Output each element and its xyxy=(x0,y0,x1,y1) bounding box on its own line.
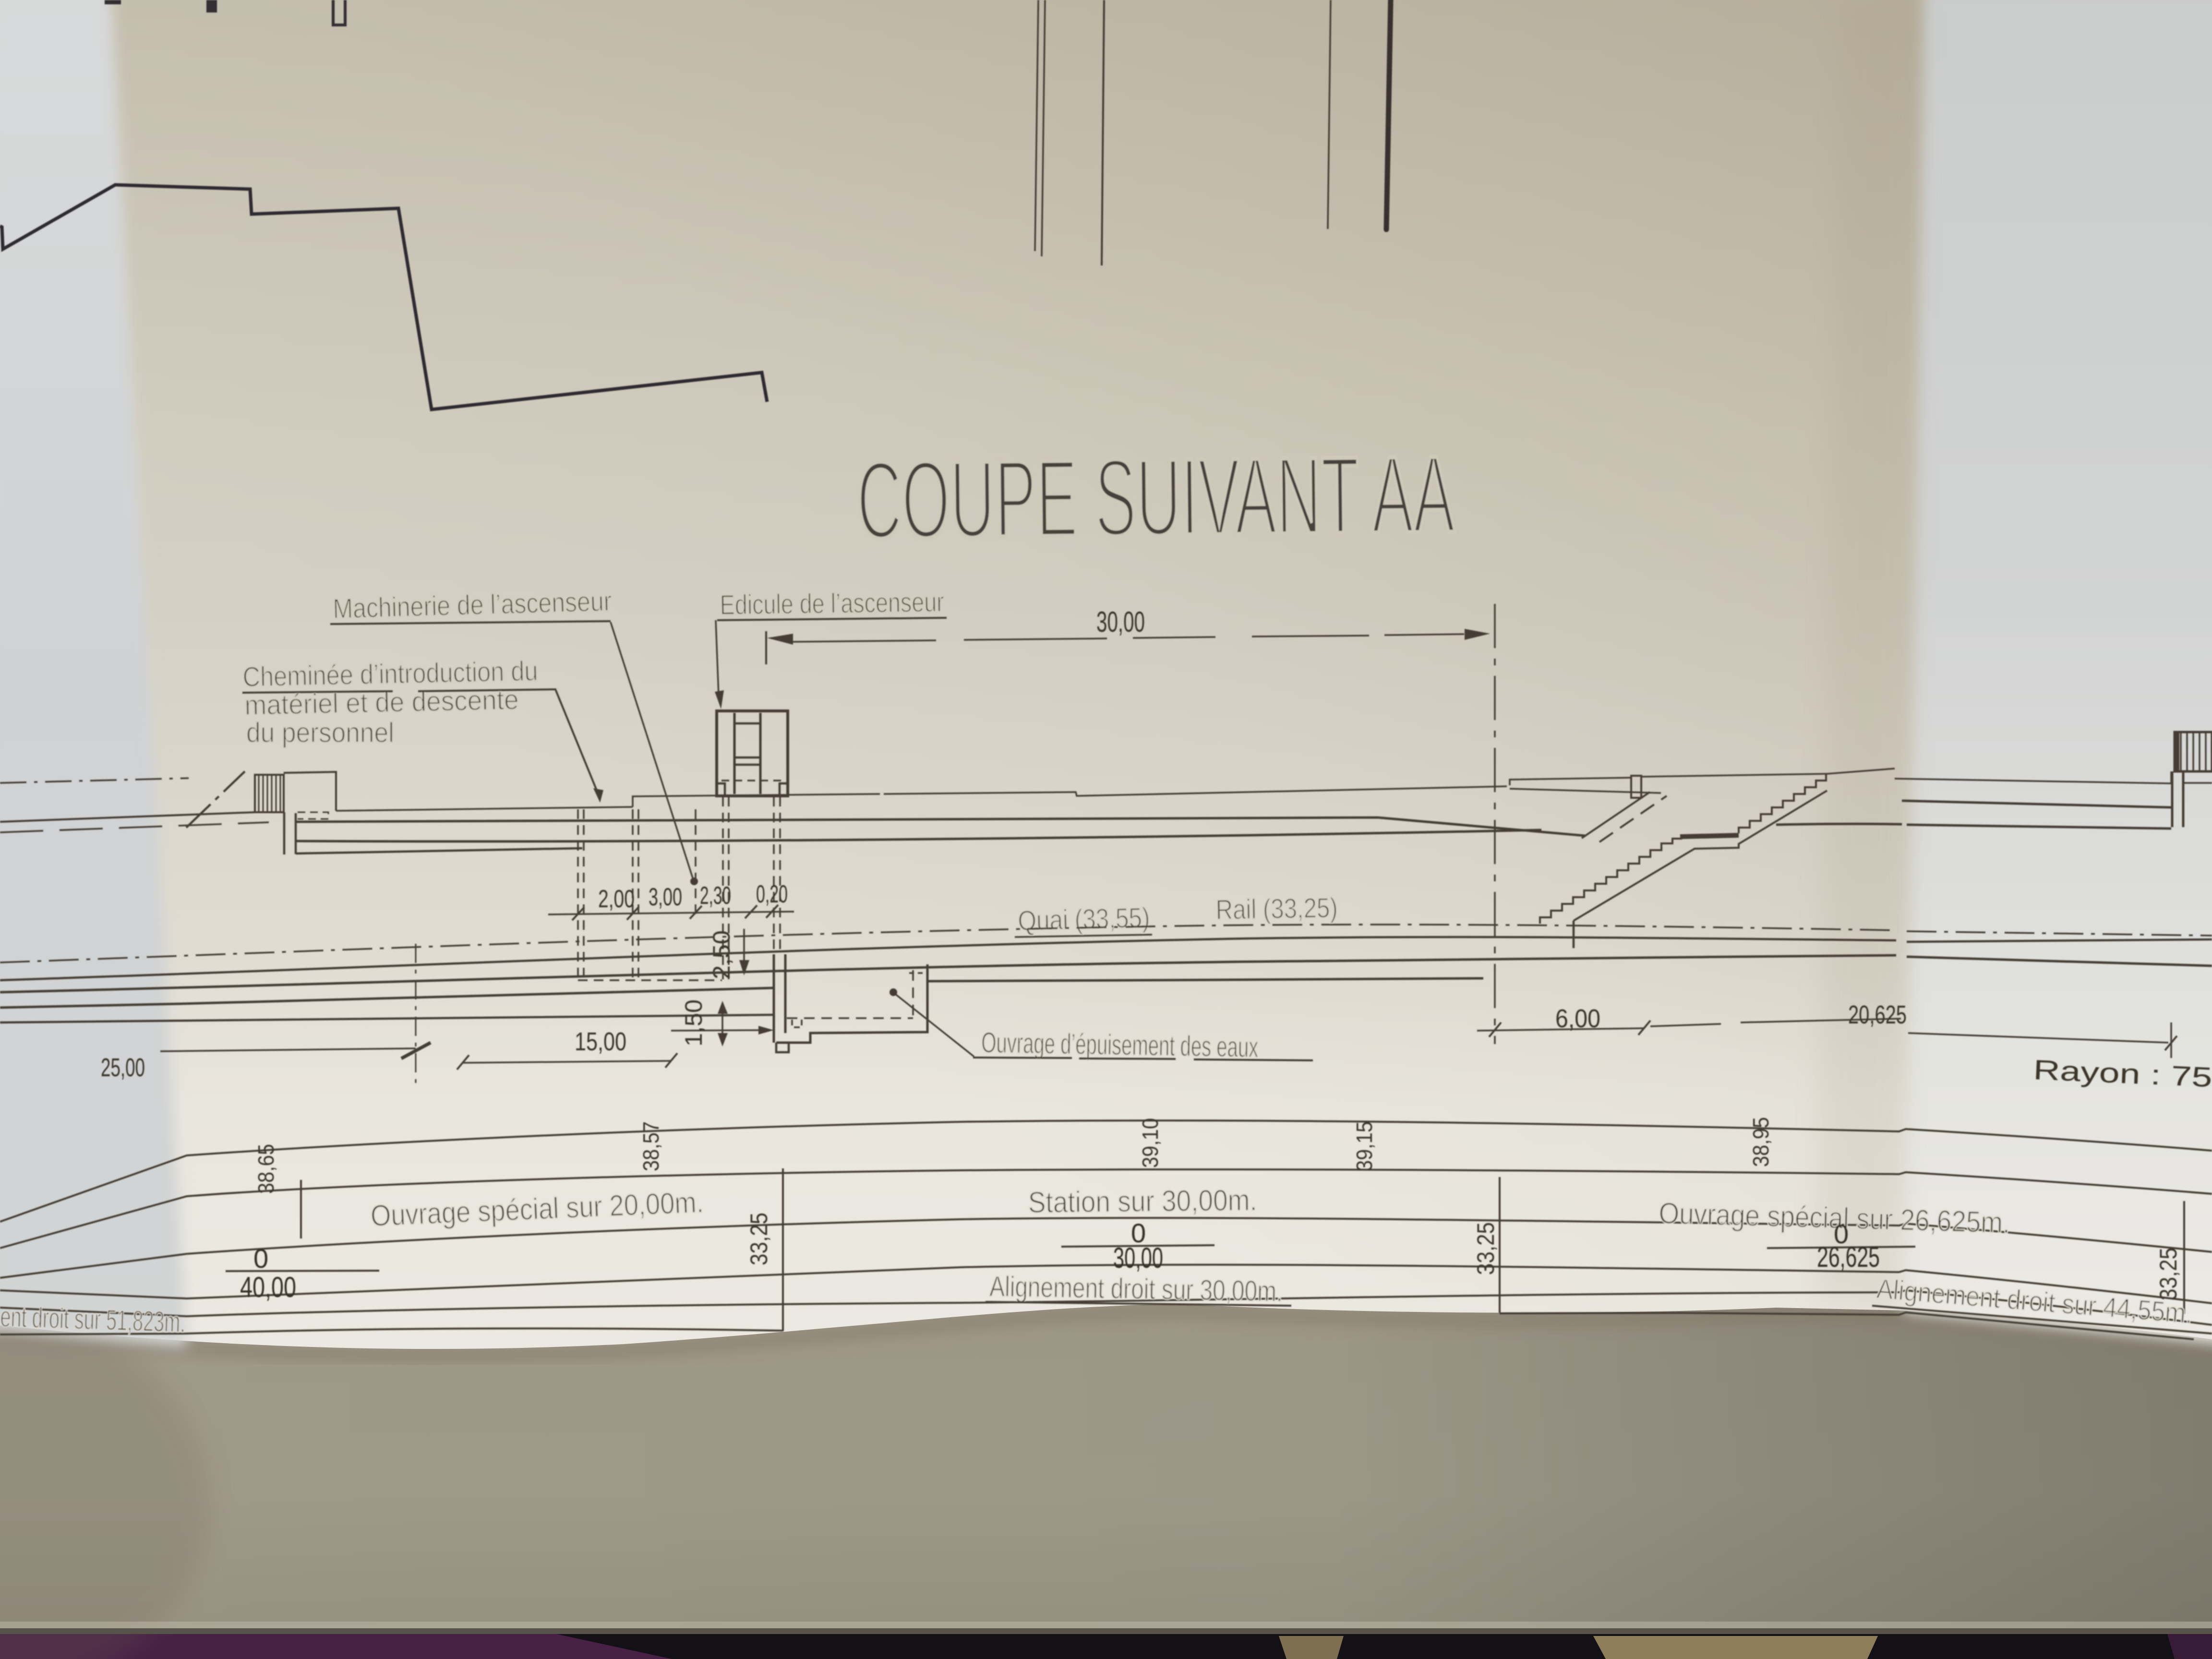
svg-text:39,10: 39,10 xyxy=(1138,1118,1163,1168)
svg-text:0: 0 xyxy=(253,1243,268,1274)
svg-text:3,00: 3,00 xyxy=(649,883,682,911)
svg-text:0,20: 0,20 xyxy=(756,880,788,908)
svg-text:COUPE SUIVANT AA: COUPE SUIVANT AA xyxy=(856,433,1455,562)
svg-text:33,25: 33,25 xyxy=(745,1213,772,1265)
svg-text:Quai (33,55): Quai (33,55) xyxy=(1018,902,1151,937)
svg-text:15,00: 15,00 xyxy=(575,1027,626,1056)
svg-text:33,25: 33,25 xyxy=(2155,1248,2182,1300)
svg-text:38,65: 38,65 xyxy=(253,1144,278,1194)
svg-text:30,00: 30,00 xyxy=(1113,1242,1163,1274)
svg-text:2,30: 2,30 xyxy=(700,882,731,910)
svg-text:6,00: 6,00 xyxy=(1555,1004,1600,1033)
svg-text:ent droit sur 51,823m.: ent droit sur 51,823m. xyxy=(0,1300,186,1338)
svg-text:Rail (33,25): Rail (33,25) xyxy=(1215,892,1338,926)
svg-text:20,625: 20,625 xyxy=(1848,1000,1907,1029)
svg-text:25,00: 25,00 xyxy=(101,1053,145,1082)
svg-text:33,25: 33,25 xyxy=(1472,1222,1499,1275)
svg-text:Edicule de l’ascenseur: Edicule de l’ascenseur xyxy=(720,586,944,621)
svg-text:2,00: 2,00 xyxy=(598,885,635,913)
svg-text:40,00: 40,00 xyxy=(240,1271,296,1303)
svg-text:26,625: 26,625 xyxy=(1817,1241,1880,1273)
svg-text:38,95: 38,95 xyxy=(1748,1117,1773,1167)
svg-text:30,00: 30,00 xyxy=(1096,606,1145,638)
svg-text:38,57: 38,57 xyxy=(638,1121,663,1171)
svg-text:39,15: 39,15 xyxy=(1352,1121,1377,1171)
svg-text:du personnel: du personnel xyxy=(246,717,394,748)
svg-text:Station sur 30,00m.: Station sur 30,00m. xyxy=(1028,1184,1257,1219)
svg-text:1,50: 1,50 xyxy=(680,999,707,1046)
